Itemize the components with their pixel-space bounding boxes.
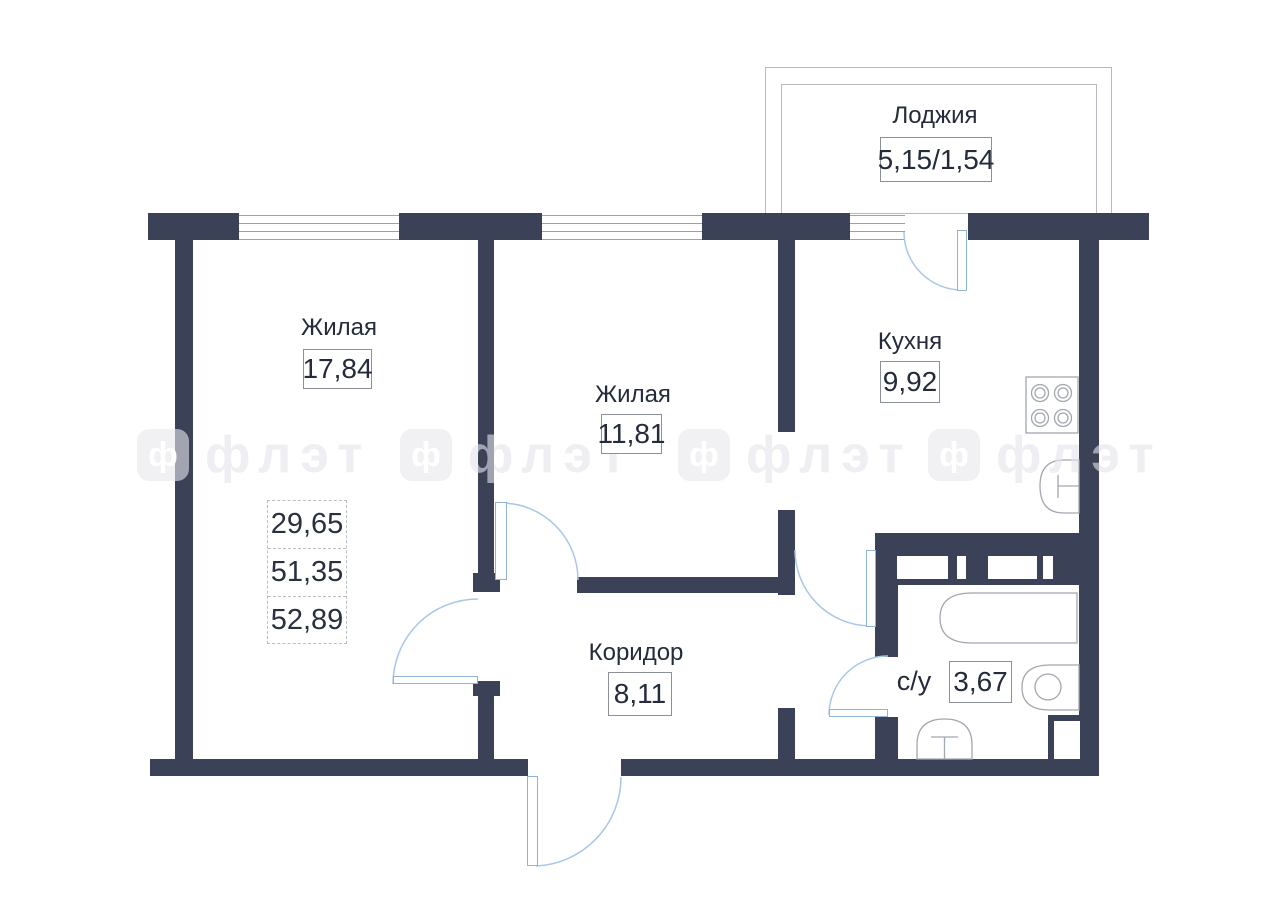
room-label-corridor: Коридор: [585, 639, 687, 667]
watermark-text: флэт: [205, 425, 372, 485]
toilet-icon: [917, 719, 972, 759]
door-leaf: [866, 550, 876, 627]
room-area-kitchen: 9,92: [880, 361, 940, 403]
room-area-living2: 11,81: [601, 414, 662, 454]
room-label-living2: Жилая: [595, 381, 667, 409]
brand-logo-icon: ф: [678, 429, 730, 481]
door-leaf: [957, 230, 967, 291]
door-arc: [829, 656, 888, 715]
room-area-loggia: 5,15/1,54: [880, 137, 992, 182]
watermark: ф флэт: [678, 425, 913, 485]
summary-total-area: 52,89: [268, 597, 346, 644]
room-area-bathroom: 3,67: [949, 661, 1012, 703]
room-label-kitchen: Кухня: [874, 328, 946, 356]
brand-logo-icon: ф: [400, 429, 452, 481]
entry-door-leaf: [527, 776, 538, 866]
door-arc: [393, 599, 478, 684]
room-label-living1: Жилая: [299, 314, 379, 342]
door-leaf: [495, 502, 507, 580]
floor-plan: ф флэт ф флэт ф флэт ф флэт Лоджия 5,15/…: [0, 0, 1280, 904]
area-summary-table: 29,65 51,35 52,89: [267, 500, 347, 644]
door-arc: [501, 503, 578, 580]
door-arc: [536, 777, 621, 866]
room-area-living1: 17,84: [303, 349, 372, 389]
brand-logo-icon: ф: [137, 429, 189, 481]
door-arc: [904, 232, 962, 290]
door-arc: [795, 550, 869, 626]
watermark: ф флэт: [137, 425, 372, 485]
brand-logo-icon: ф: [928, 429, 980, 481]
summary-living-area: 29,65: [268, 501, 346, 549]
door-leaf: [829, 709, 888, 717]
watermark-text: флэт: [746, 425, 913, 485]
door-leaf: [393, 676, 478, 684]
room-label-loggia: Лоджия: [870, 102, 1000, 130]
room-area-corridor: 8,11: [608, 672, 672, 716]
bathtub-icon: [940, 593, 1077, 643]
room-label-bathroom: с/у: [888, 666, 940, 697]
watermark-text: флэт: [996, 425, 1163, 485]
watermark: ф флэт: [928, 425, 1163, 485]
summary-area-without-loggia: 51,35: [268, 549, 346, 597]
bathroom-sink-icon: [1022, 665, 1079, 710]
